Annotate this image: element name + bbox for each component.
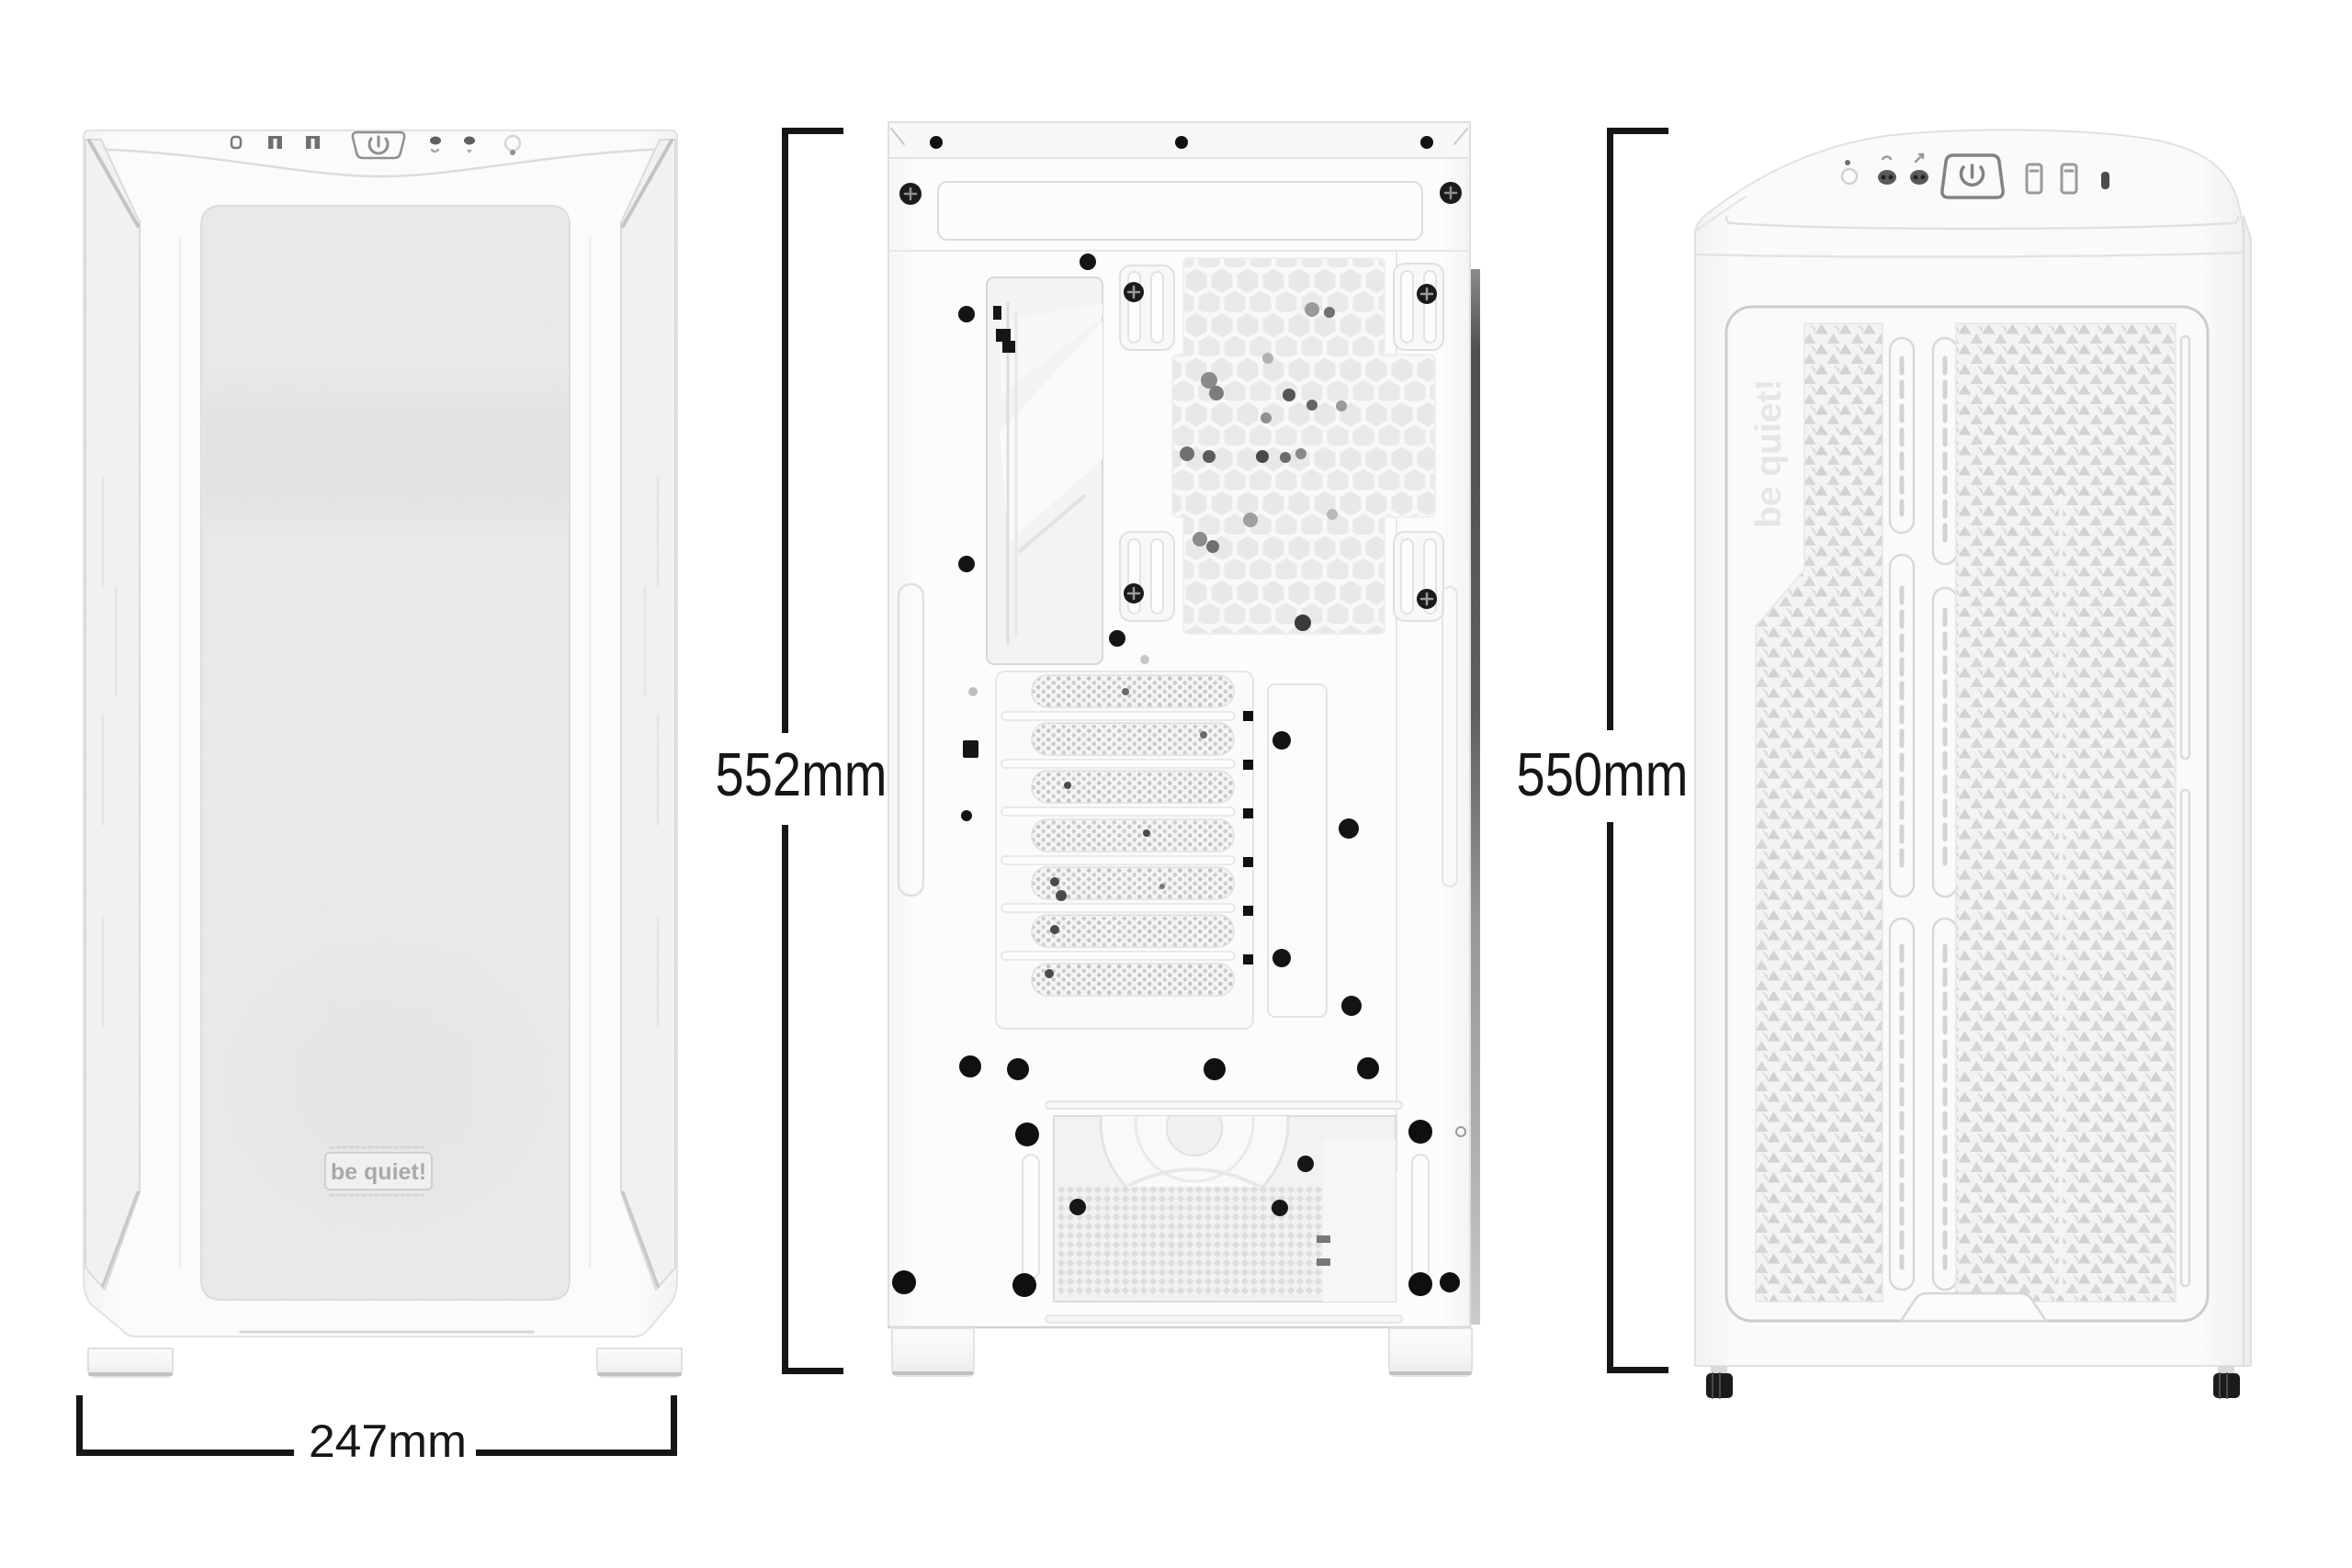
svg-text:be quiet!: be quiet! [331, 1159, 426, 1185]
svg-text:552mm: 552mm [716, 740, 888, 809]
svg-text:be quiet!: be quiet! [1749, 379, 1789, 529]
svg-text:247mm: 247mm [309, 1416, 467, 1467]
svg-text:550mm: 550mm [1517, 740, 1689, 809]
